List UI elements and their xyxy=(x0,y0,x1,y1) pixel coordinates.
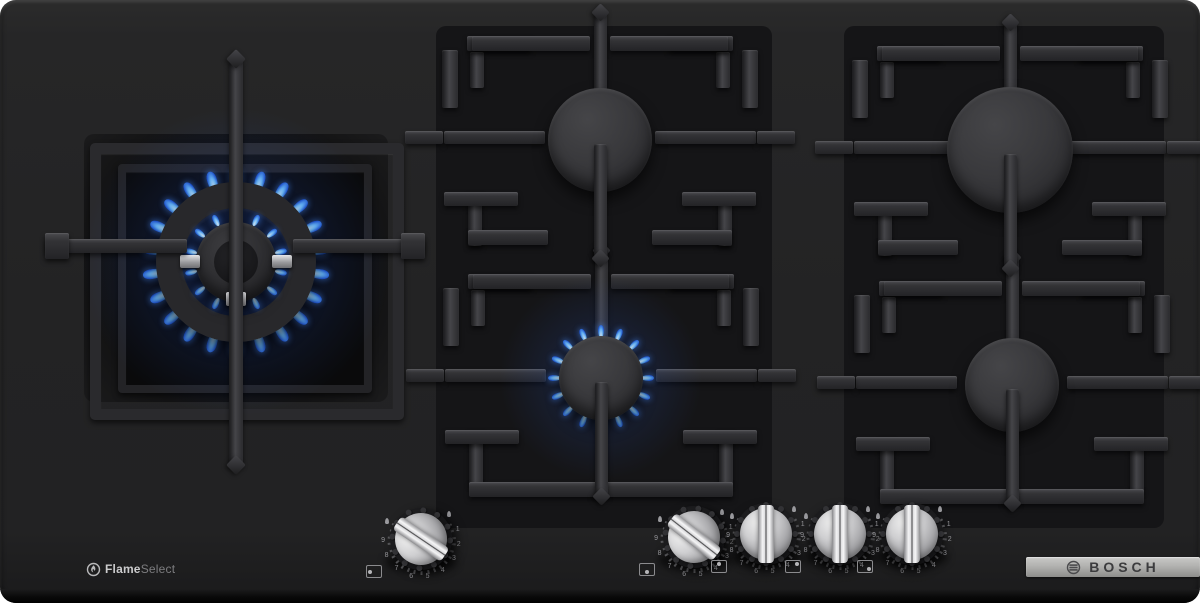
flameselect-icon xyxy=(86,562,101,577)
grid-bar xyxy=(1167,141,1200,154)
knob-handle xyxy=(758,505,774,563)
burner-position-dot xyxy=(368,570,372,574)
grid-bar xyxy=(445,369,546,382)
grid-bar-over-cap xyxy=(1006,389,1019,501)
grid-bar xyxy=(1126,62,1140,98)
grid-bar xyxy=(817,376,855,389)
grid-bar xyxy=(1022,281,1140,296)
grid-bar xyxy=(472,36,590,51)
grid-bar-over-cap xyxy=(594,144,607,256)
knob-handle xyxy=(832,505,848,563)
grid-bar xyxy=(444,192,518,206)
grid-bar xyxy=(882,46,1000,61)
grid-bar xyxy=(1154,295,1170,353)
grid-bar xyxy=(854,295,870,353)
grid-bar xyxy=(856,376,957,389)
grid-bar xyxy=(815,141,853,154)
grid-bar xyxy=(406,369,444,382)
grid-bar xyxy=(1067,376,1168,389)
bosch-brand-text: BOSCH xyxy=(1089,559,1160,575)
burner-position-dot xyxy=(795,562,799,566)
grid-bar xyxy=(473,274,591,289)
grid-bar xyxy=(1020,46,1138,61)
bosch-logo-icon xyxy=(1066,560,1081,575)
burner-position-icon xyxy=(639,563,655,576)
grid-bar xyxy=(852,60,868,118)
burner-position-icon xyxy=(711,560,727,573)
knob-rotor xyxy=(866,488,958,580)
grid-bar xyxy=(652,230,732,245)
hob-surface: 1234567891234567891234567891234567891234… xyxy=(0,0,1200,603)
wok-cross-end xyxy=(45,233,69,259)
grid-bar xyxy=(854,202,928,216)
front-bevel xyxy=(0,589,1200,603)
grid-bar xyxy=(405,131,443,144)
grid-bar-over-cap xyxy=(595,382,608,494)
burner-position-dot xyxy=(645,570,649,574)
grid-bar xyxy=(882,297,896,333)
wok-cross-end xyxy=(401,233,425,259)
base-nub xyxy=(778,556,784,562)
grid-bar xyxy=(878,240,958,255)
burner-position-icon xyxy=(366,565,382,578)
grid-bar xyxy=(757,131,795,144)
base-nub xyxy=(934,546,940,552)
grid-bar xyxy=(443,288,459,346)
base-nub xyxy=(938,531,944,537)
grid-bar xyxy=(758,369,796,382)
knob-handle xyxy=(904,505,920,563)
grid-bar xyxy=(468,230,548,245)
base-nub xyxy=(924,556,930,562)
grid-bar xyxy=(1169,376,1200,389)
grid-bar xyxy=(611,274,729,289)
grid-bar xyxy=(1094,437,1168,451)
grid-bar xyxy=(656,369,757,382)
grid-bar xyxy=(471,290,485,326)
bosch-badge: BOSCH xyxy=(1026,557,1200,577)
grid-bar xyxy=(445,430,519,444)
grid-bar xyxy=(1062,240,1142,255)
grid-bar xyxy=(1128,297,1142,333)
flameselect-label-light: Select xyxy=(141,562,176,576)
grid-bar xyxy=(742,50,758,108)
flameselect-label-bold: Flame xyxy=(105,562,141,576)
grid-bar xyxy=(880,62,894,98)
burner-position-icon xyxy=(785,560,801,573)
grid-bar xyxy=(743,288,759,346)
grid-bar xyxy=(1152,60,1168,118)
grid-bar xyxy=(682,192,756,206)
cooktop-photo: 1234567891234567891234567891234567891234… xyxy=(0,0,1200,603)
grid-bar xyxy=(655,131,756,144)
grid-bar xyxy=(716,52,730,88)
burner-position-dot xyxy=(867,567,871,571)
burner-position-dot xyxy=(717,562,721,566)
grid-bar xyxy=(683,430,757,444)
grid-bar xyxy=(884,281,1002,296)
grid-bar xyxy=(854,141,955,154)
knob-wok[interactable]: 123456789 xyxy=(375,493,467,585)
igniter-fitting xyxy=(272,255,292,268)
grid-bar xyxy=(442,50,458,108)
grid-bar xyxy=(470,52,484,88)
grid-bar xyxy=(1092,202,1166,216)
igniter-fitting xyxy=(180,255,200,268)
grid-bar xyxy=(610,36,728,51)
wok-cross-bar-vertical xyxy=(229,60,243,464)
knob-front-right[interactable]: 123456789 xyxy=(866,488,958,580)
flameselect-badge: FlameSelect xyxy=(86,560,175,578)
grid-bar-over-cap xyxy=(1004,154,1017,266)
grid-bar xyxy=(444,131,545,144)
grid-bar xyxy=(1065,141,1166,154)
knob-rotor xyxy=(357,475,485,603)
grid-bar xyxy=(856,437,930,451)
grid-bar xyxy=(717,290,731,326)
burner-position-icon xyxy=(857,560,873,573)
